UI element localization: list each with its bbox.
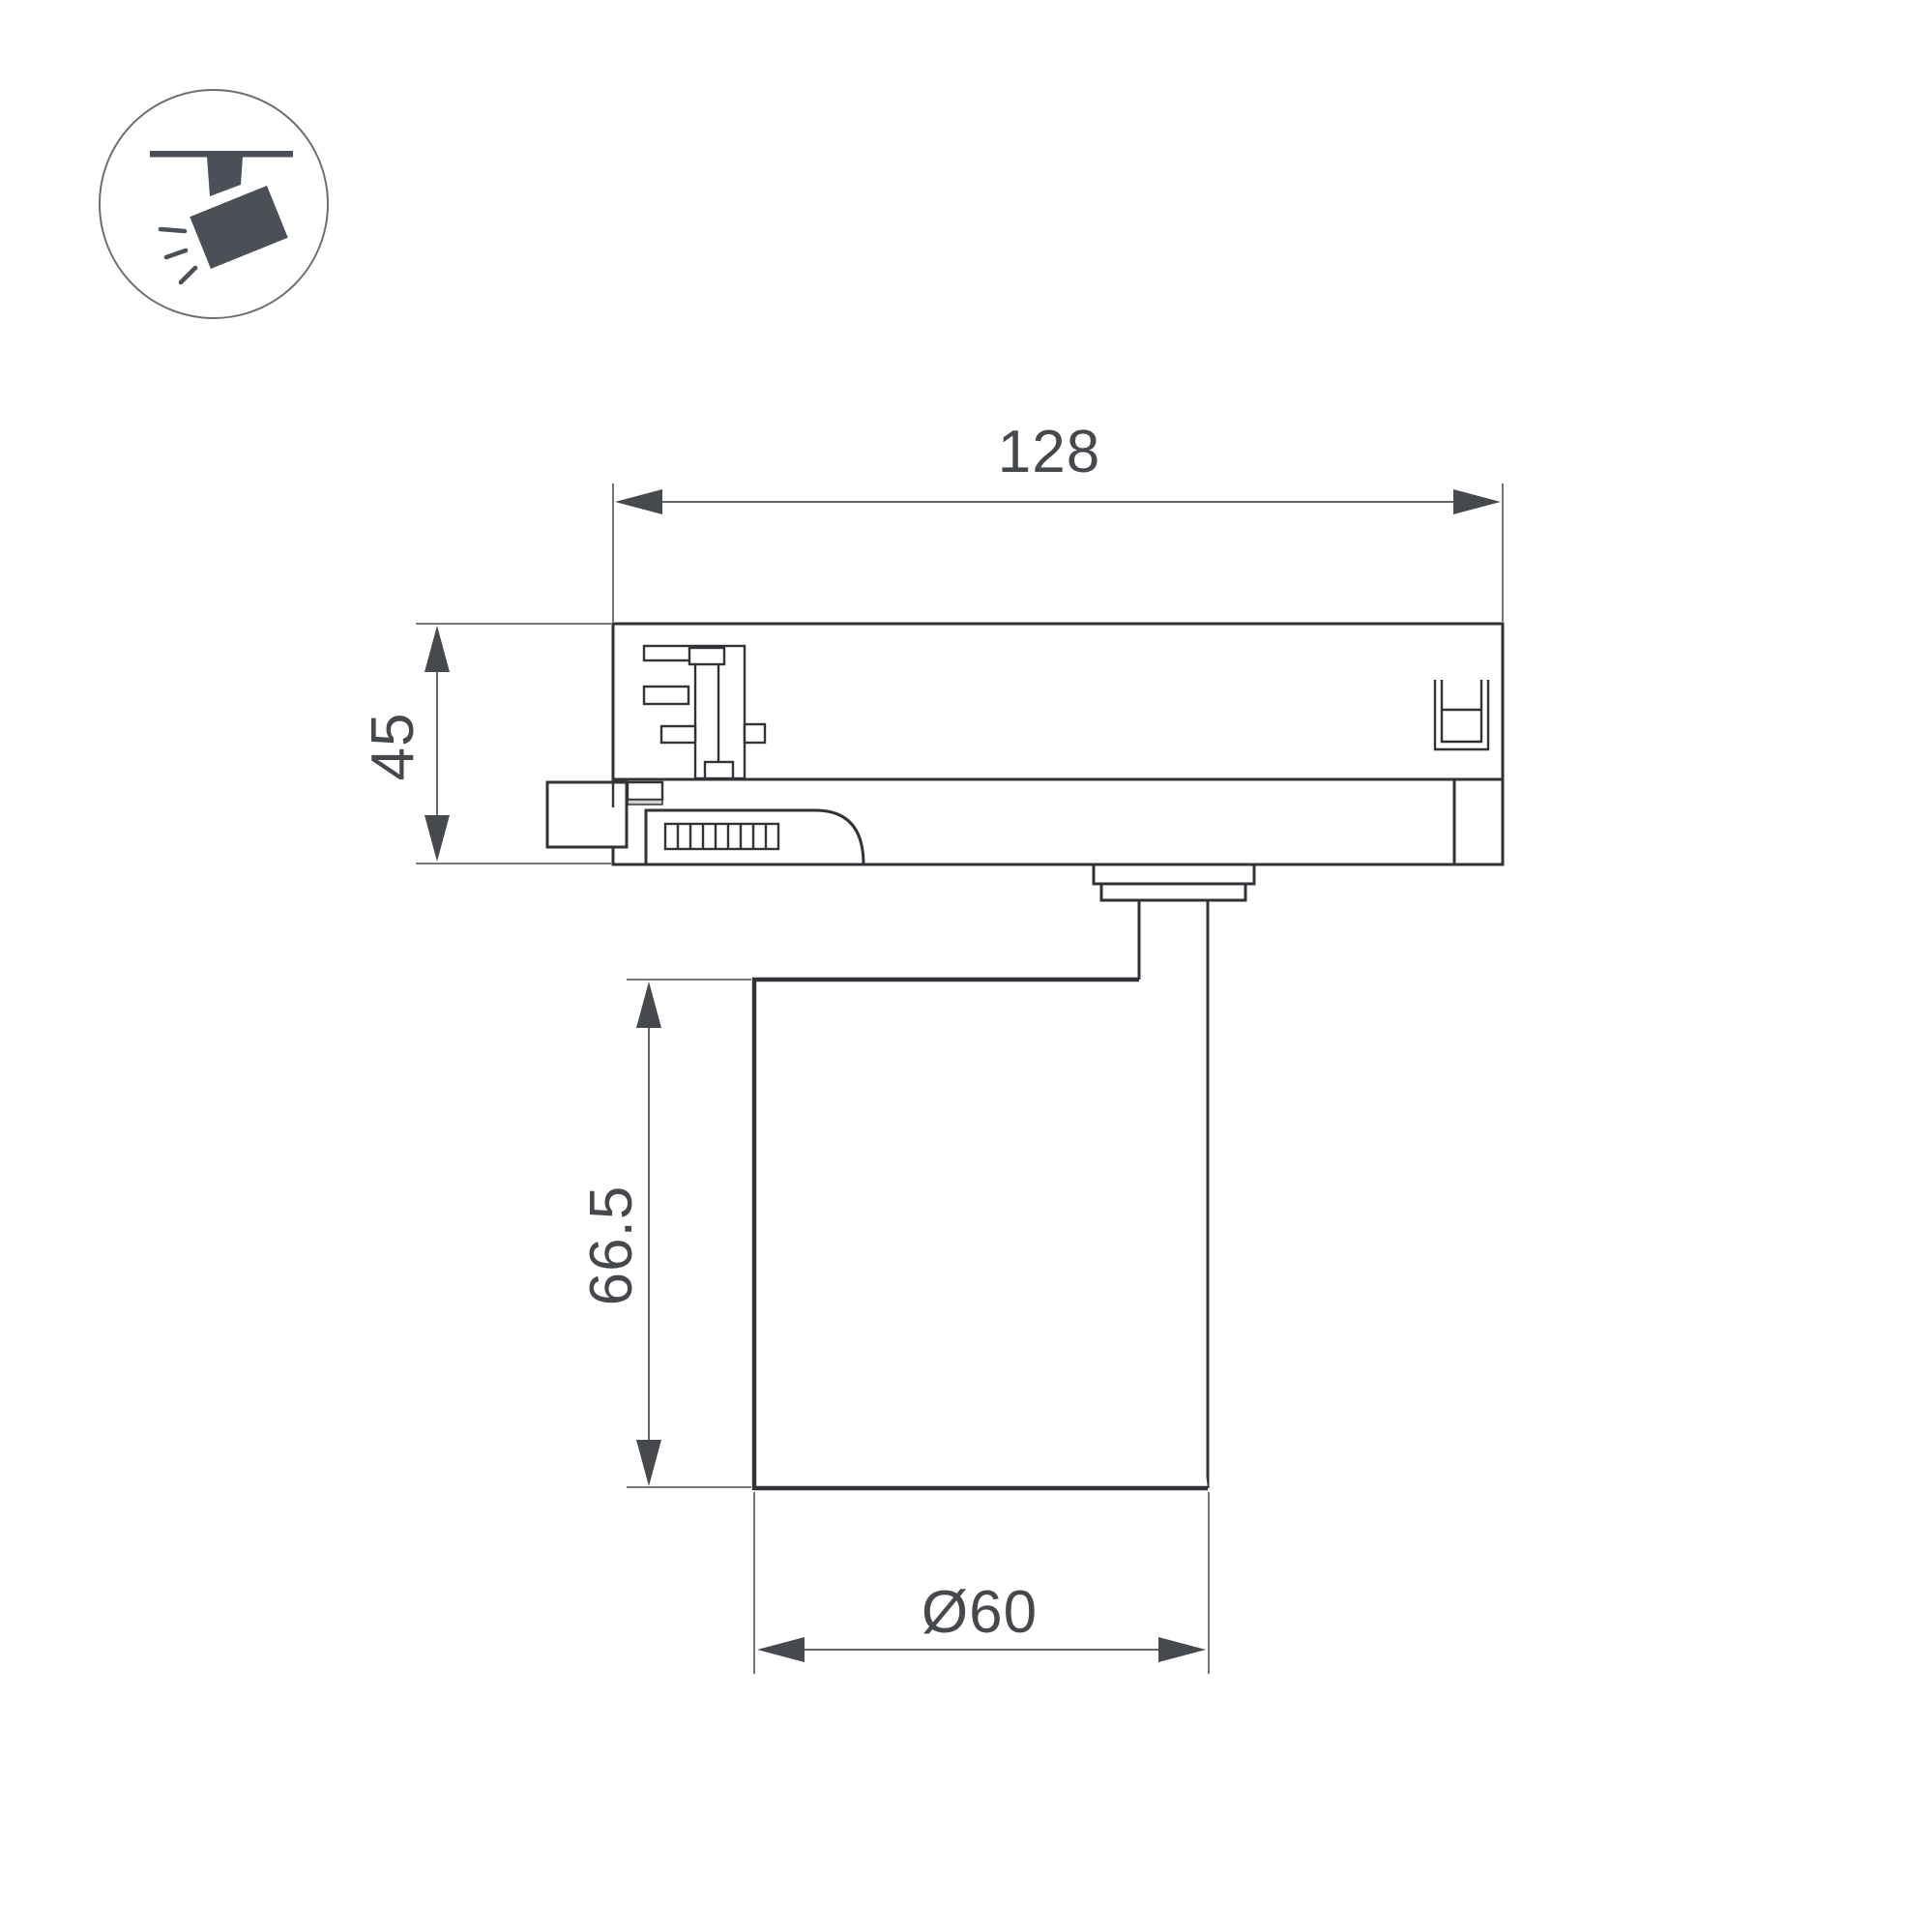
track-light-dimension-drawing: 128 45 66.5 Ø60: [0, 0, 1932, 1932]
contact-foot: [705, 762, 733, 778]
adapter-lower-plate: [613, 779, 1503, 864]
icon-light-ray: [161, 229, 185, 231]
arrow-up-icon: [636, 981, 661, 1028]
latch-body: [547, 782, 627, 847]
lamp-body: [754, 980, 1208, 1488]
contact-post: [695, 646, 745, 778]
arrow-right-icon: [1453, 489, 1501, 514]
dim-body-diameter: Ø60: [754, 1492, 1209, 1674]
arrow-up-icon: [424, 626, 450, 672]
contact-prong-middle: [644, 687, 688, 704]
dim-adapter-height-label: 45: [360, 713, 426, 781]
adapter-top-box: [613, 624, 1503, 779]
arrow-right-icon: [1158, 1637, 1206, 1662]
ribbed-slider: [665, 824, 778, 849]
arrow-left-icon: [615, 489, 662, 514]
contact-prong-bottom: [661, 726, 695, 743]
contact-prong-top: [644, 646, 695, 660]
icon-circle: [100, 90, 328, 318]
latch-strip: [628, 800, 662, 805]
dim-body-height-label: 66.5: [578, 1186, 645, 1306]
contact-notch-right: [745, 724, 765, 743]
lamp-body-outline: [754, 980, 1208, 1488]
contact-cap: [689, 648, 724, 664]
dim-track-width: 128: [613, 419, 1503, 622]
arrow-down-icon: [636, 1440, 661, 1486]
flange-upper: [1094, 864, 1254, 884]
arrow-left-icon: [757, 1637, 805, 1662]
icon-track-bar: [150, 151, 293, 158]
dim-body-diameter-label: Ø60: [922, 1579, 1038, 1646]
adapter-top-box-outline: [613, 624, 1503, 779]
technical-drawing-page: 128 45 66.5 Ø60: [0, 0, 1932, 1932]
latch-small-box: [628, 782, 662, 800]
flange-lower: [1101, 884, 1245, 900]
dim-body-height: 66.5: [578, 980, 751, 1487]
lower-plate-outline: [613, 779, 1503, 864]
dim-track-width-label: 128: [998, 419, 1100, 485]
track-light-icon: [100, 90, 328, 318]
arrow-down-icon: [424, 815, 450, 862]
